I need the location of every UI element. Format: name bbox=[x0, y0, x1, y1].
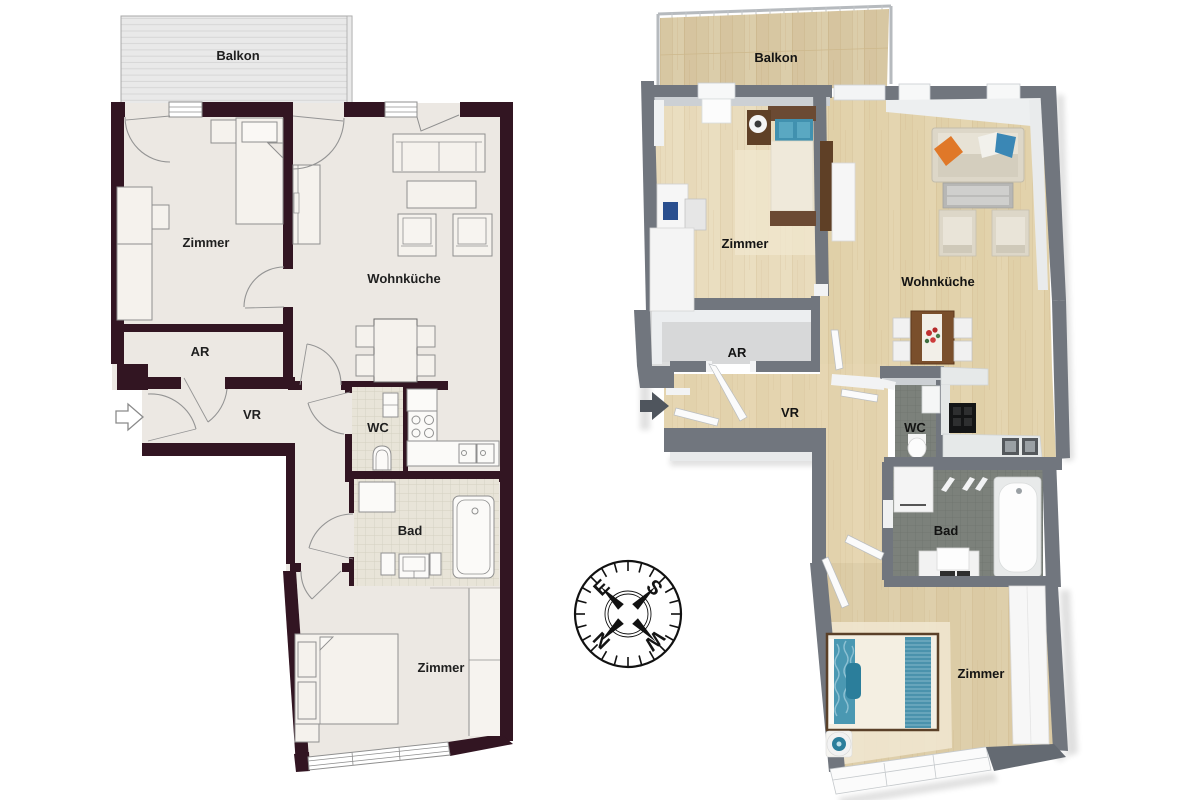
svg-text:Zimmer: Zimmer bbox=[958, 666, 1005, 681]
svg-text:Balkon: Balkon bbox=[754, 50, 797, 65]
svg-text:AR: AR bbox=[728, 345, 747, 360]
svg-text:Zimmer: Zimmer bbox=[183, 235, 230, 250]
svg-text:WC: WC bbox=[367, 420, 389, 435]
svg-text:WC: WC bbox=[904, 420, 926, 435]
svg-text:Zimmer: Zimmer bbox=[722, 236, 769, 251]
svg-text:Balkon: Balkon bbox=[216, 48, 259, 63]
svg-text:Wohnküche: Wohnküche bbox=[367, 271, 440, 286]
svg-text:Bad: Bad bbox=[398, 523, 423, 538]
svg-text:AR: AR bbox=[191, 344, 210, 359]
svg-text:Zimmer: Zimmer bbox=[418, 660, 465, 675]
svg-text:VR: VR bbox=[781, 405, 800, 420]
svg-text:VR: VR bbox=[243, 407, 262, 422]
svg-text:Wohnküche: Wohnküche bbox=[901, 274, 974, 289]
svg-text:Bad: Bad bbox=[934, 523, 959, 538]
